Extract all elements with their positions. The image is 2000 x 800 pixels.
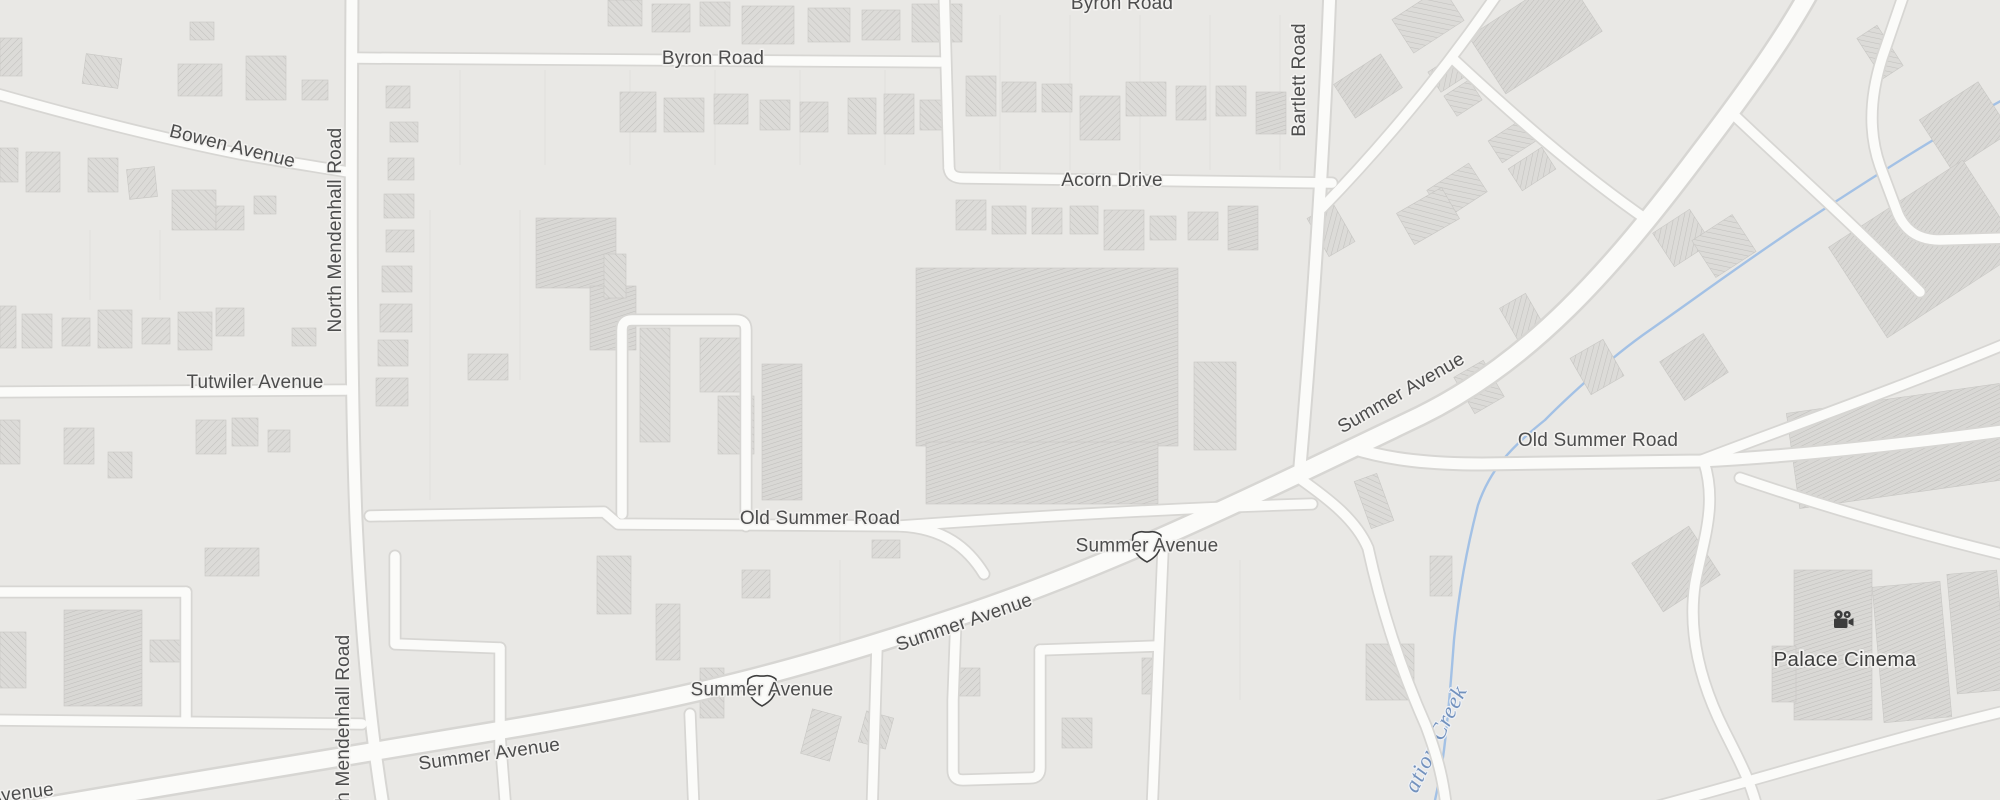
building-footprint — [190, 22, 214, 40]
building-footprint — [1070, 206, 1098, 234]
building-footprint — [468, 354, 508, 380]
building-footprint — [232, 418, 258, 446]
road-south-stub-2 — [690, 714, 694, 800]
building-footprint — [1104, 210, 1144, 250]
building-footprint — [1256, 92, 1286, 134]
building-footprint — [1228, 206, 1258, 250]
shielded-road-label: Summer Avenue — [691, 680, 834, 701]
building-footprint — [700, 338, 742, 392]
building-footprint — [862, 10, 900, 40]
building-footprint — [98, 310, 132, 348]
building-footprint — [82, 54, 122, 89]
building-footprint — [1430, 556, 1452, 596]
building-footprint — [108, 452, 132, 478]
building-footprint — [762, 364, 802, 500]
building-footprint — [640, 328, 670, 442]
building-footprint — [992, 206, 1026, 234]
road-byron-road-west — [354, 58, 940, 62]
building-footprint — [920, 100, 944, 130]
building-footprint — [956, 200, 986, 230]
road-label: Bartlett Road — [1289, 23, 1310, 137]
building-footprint — [246, 56, 286, 100]
building-footprint — [172, 190, 216, 230]
building-footprint — [88, 158, 118, 192]
road-se-connector — [1040, 646, 1158, 650]
building-footprint — [196, 420, 226, 454]
building-footprint — [700, 2, 730, 26]
building-footprint — [0, 420, 20, 464]
building-footprint — [760, 100, 790, 130]
road-label: North Mendenhall Road — [325, 128, 346, 333]
road-label: Tutwiler Avenue — [186, 372, 323, 393]
building-footprint — [1194, 362, 1236, 450]
building-footprint — [388, 158, 414, 180]
building-footprint — [0, 306, 16, 348]
building-footprint — [652, 4, 690, 32]
road-label: Old Summer Road — [740, 508, 900, 529]
building-footprint — [1150, 216, 1176, 240]
building-footprint — [384, 194, 414, 218]
building-footprint — [808, 8, 850, 42]
building-footprint — [254, 196, 276, 214]
building-footprint — [742, 570, 770, 598]
road-south-road-1 — [872, 646, 877, 800]
road-left-block-south — [0, 720, 362, 724]
building-footprint — [268, 430, 290, 452]
building-footprint — [1080, 96, 1120, 140]
shielded-road-label: Summer Avenue — [1076, 536, 1219, 557]
building-footprint — [26, 152, 60, 192]
building-footprint — [1176, 86, 1206, 120]
building-footprint — [1042, 84, 1072, 112]
building-footprint — [597, 556, 631, 614]
building-footprint — [216, 308, 244, 336]
building-footprint — [292, 328, 316, 346]
building-footprint — [1032, 208, 1062, 234]
building-footprint — [926, 442, 1158, 504]
poi-label: Palace Cinema — [1774, 648, 1917, 671]
road-label: Byron Road — [662, 48, 764, 69]
building-footprint — [216, 206, 244, 230]
building-footprint — [916, 268, 1178, 446]
map-viewport[interactable]: ation Creek Byron RoadByron RoadBowen Av… — [0, 0, 2000, 800]
building-footprint — [608, 0, 642, 26]
building-footprint — [0, 38, 22, 76]
building-footprint — [302, 80, 328, 100]
building-footprint — [1002, 82, 1036, 112]
building-footprint — [0, 632, 26, 688]
building-footprint — [376, 378, 408, 406]
road-label: Byron Road — [1071, 0, 1173, 14]
building-footprint — [382, 266, 412, 292]
building-footprint — [1188, 212, 1218, 240]
building-footprint — [178, 312, 212, 350]
road-label: Acorn Drive — [1061, 170, 1162, 191]
building-footprint — [178, 64, 222, 96]
building-footprint — [1216, 86, 1246, 116]
road-byron-connector — [944, 0, 949, 168]
building-footprint — [127, 167, 158, 200]
building-footprint — [872, 540, 900, 558]
map-canvas[interactable]: ation Creek Byron RoadByron RoadBowen Av… — [0, 0, 2000, 800]
building-footprint — [1126, 82, 1166, 116]
building-footprint — [386, 86, 410, 108]
building-footprint — [620, 92, 656, 132]
building-footprint — [378, 340, 408, 366]
building-footprint — [380, 304, 412, 332]
building-footprint — [664, 98, 704, 132]
building-footprint — [912, 4, 962, 42]
building-footprint — [205, 548, 259, 576]
building-footprint — [150, 640, 180, 662]
building-footprint — [800, 102, 828, 132]
building-footprint — [142, 318, 170, 344]
building-footprint — [62, 318, 90, 346]
building-footprint — [390, 122, 418, 142]
building-footprint — [1062, 718, 1092, 748]
building-footprint — [714, 94, 748, 124]
building-footprint — [848, 98, 876, 134]
building-footprint — [1794, 570, 1872, 720]
building-footprint — [0, 148, 18, 182]
building-footprint — [22, 314, 52, 348]
building-footprint — [64, 428, 94, 464]
road-label: North Mendenhall Road — [333, 635, 354, 800]
building-footprint — [604, 254, 626, 298]
building-footprint — [742, 6, 794, 44]
building-footprint — [386, 230, 414, 252]
building-footprint — [884, 94, 914, 134]
road-label: Old Summer Road — [1518, 430, 1678, 451]
building-footprint — [64, 610, 142, 706]
building-footprint — [966, 76, 996, 116]
building-footprint — [656, 604, 680, 660]
